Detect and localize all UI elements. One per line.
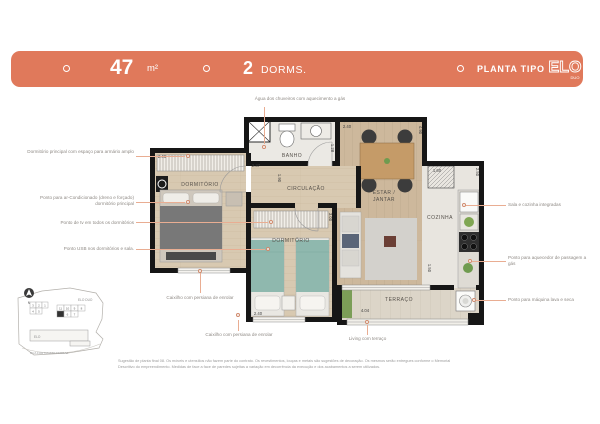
dim-estar-height: 4.90 (418, 126, 423, 135)
plan-type-label: PLANTA TIPO (477, 64, 545, 74)
callout-master-closet: Dormitório principal com espaço para arm… (24, 149, 134, 155)
leader-dot (365, 320, 369, 324)
callout-shower-gas: Água dos chuveiros com aquecimento a gás (230, 96, 370, 102)
dorms-label: DORMS. (261, 64, 307, 76)
dim-dorm2-height: 3.00 (328, 213, 333, 222)
floor-plan: DORMITÓRIO BANHO CIRCULAÇÃO ESTAR / JANT… (150, 115, 492, 337)
header-banner: 47 m² 2 DORMS. PLANTA TIPO ELO DUO (11, 51, 583, 87)
dim-terraco-width: 4.04 (361, 308, 370, 313)
leader-dot (462, 203, 466, 207)
dim-cozinha-width: 1.60 (433, 168, 442, 173)
leader-dot (198, 269, 202, 273)
callout-usb-point: Ponto USB nos dormitórios e sala. (24, 246, 134, 252)
floorplan-page: 47 m² 2 DORMS. PLANTA TIPO ELO DUO (0, 0, 600, 424)
leader-line (264, 107, 265, 144)
callout-roller-shutter-2: Caixilho com persiana de enrolar (189, 332, 289, 338)
leader-line (367, 325, 368, 335)
leader-line (476, 300, 506, 301)
leader-dot (472, 298, 476, 302)
dim-banho-width: 2.37 (252, 163, 261, 168)
dim-banho-height: 1.28 (330, 144, 335, 153)
callout-washer-dryer: Ponto para máquina lava e seca (508, 297, 588, 303)
room-label-estar-2: JANTAR (373, 197, 395, 203)
leader-dot (262, 145, 266, 149)
leader-line (136, 202, 185, 203)
dim-dorm2-width: 2.40 (254, 311, 263, 316)
logo-text: ELO (549, 59, 582, 76)
dim-estar-width: 2.40 (343, 124, 352, 129)
callout-roller-shutter-1: Caixilho com persiana de enrolar (150, 295, 250, 301)
tower-bar-annex (70, 341, 90, 346)
room-label-estar-1: ESTAR / (373, 190, 396, 196)
disclaimer-line-2: Descritivo do empreendimento. Medidas de… (118, 365, 380, 369)
leader-dot (269, 220, 273, 224)
room-label-circulacao: CIRCULAÇÃO (287, 185, 325, 192)
bullet-icon (203, 65, 210, 72)
room-label-dorm2: DORMITÓRIO (272, 237, 310, 244)
room-label-dorm1: DORMITÓRIO (181, 181, 219, 188)
room-label-cozinha: COZINHA (427, 215, 453, 221)
callout-gas-heater: Ponto para aquecedor de passagem a gás (508, 255, 588, 268)
keyplan-tower-label: ELO (34, 335, 41, 339)
leader-dot (236, 313, 240, 317)
elo-duo-logo: ELO DUO (548, 55, 584, 83)
bullet-icon (457, 65, 464, 72)
dorms-value: 2 (243, 58, 253, 79)
dim-terraco-height: 1.50 (427, 264, 432, 273)
leader-dot (186, 200, 190, 204)
callout-tv-point: Ponto de tv em todos os dormitórios (24, 220, 134, 226)
keyplan-project-label: ELO DUO (78, 298, 93, 302)
callout-integrated-kitchen: Sala e cozinha integradas (508, 202, 588, 208)
room-label-terraco: TERRAÇO (385, 297, 413, 303)
leader-dot (186, 154, 190, 158)
callout-master-ac: Ponto para ar-Condicionado (dreno e forç… (24, 195, 134, 208)
leader-line (136, 222, 268, 223)
logo-subtext: DUO (571, 75, 580, 80)
leader-line (472, 261, 506, 262)
leader-dot (468, 259, 472, 263)
area-unit: m² (147, 63, 158, 74)
unit-number: 10 (66, 307, 70, 311)
leader-line (136, 156, 185, 157)
leader-line (200, 273, 201, 293)
leader-line (136, 249, 265, 250)
dim-circ-height: 1.90 (277, 174, 282, 183)
highlighted-unit (57, 311, 64, 317)
disclaimer-line-1: Sugestão de planta final 08. Os móveis e… (118, 359, 450, 363)
unit-number: 11 (59, 307, 62, 311)
leader-line (238, 320, 239, 331)
keyplan-street-label: RUA FORTUNATO FERRAZ (30, 351, 68, 355)
room-label-banho: BANHO (282, 153, 302, 159)
area-value: 47 (110, 56, 133, 80)
bullet-icon (63, 65, 70, 72)
leader-line (466, 205, 506, 206)
dim-cozinha-height: 2.50 (475, 168, 480, 177)
callout-living-terrace: Living com terraço (325, 336, 410, 342)
leader-dot (266, 247, 270, 251)
keyplan: N ELO DUO 3 2 1 4 5 11 10 9 8 6 7 ELO RU… (10, 284, 110, 360)
